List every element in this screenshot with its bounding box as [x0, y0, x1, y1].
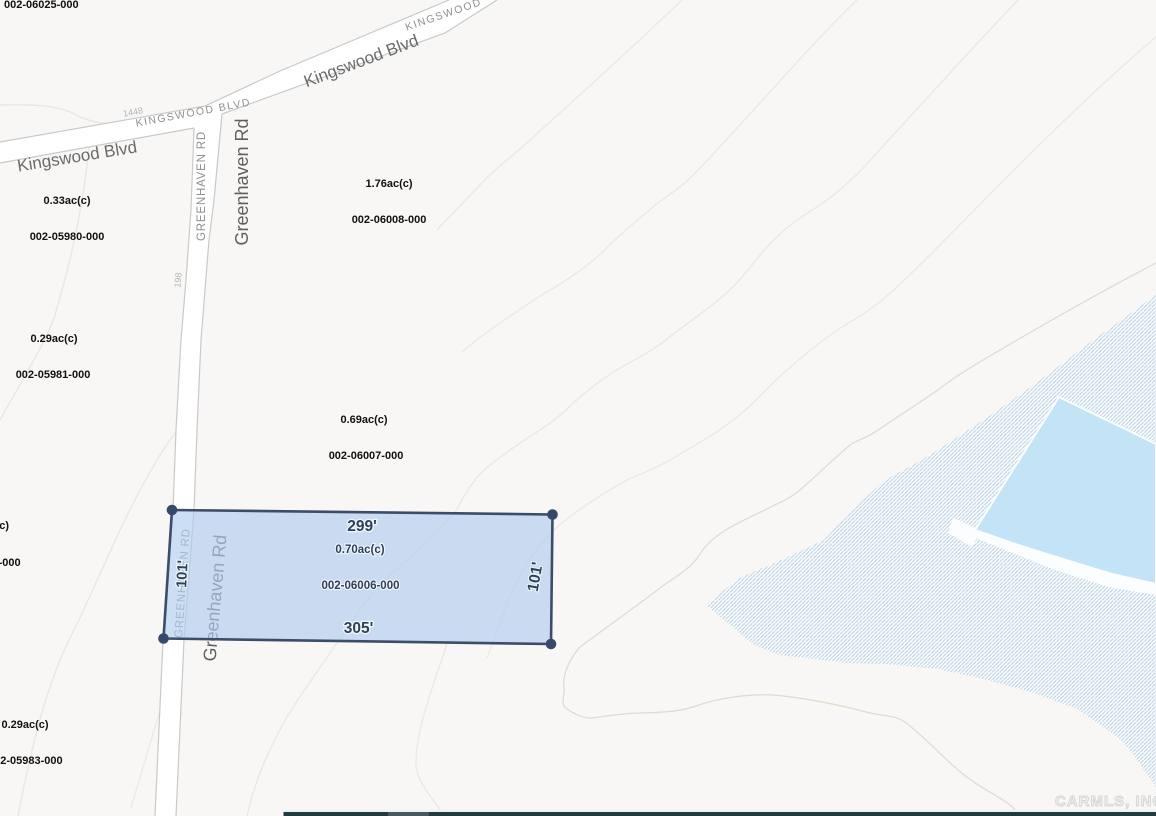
svg-text:GREENHAVEN RD: GREENHAVEN RD — [196, 131, 208, 241]
svg-text:101': 101' — [174, 560, 191, 588]
svg-text:305': 305' — [344, 620, 374, 637]
svg-text:002-06006-000: 002-06006-000 — [321, 580, 399, 592]
svg-text:0.33ac(c): 0.33ac(c) — [43, 195, 90, 207]
svg-text:0.70ac(c): 0.70ac(c) — [335, 544, 384, 556]
svg-text:002-06007-000: 002-06007-000 — [329, 450, 404, 462]
svg-text:002-05981-000: 002-05981-000 — [16, 369, 91, 381]
svg-text:002-05987-000: 002-05987-000 — [0, 557, 21, 569]
svg-text:002-05983-000: 002-05983-000 — [0, 755, 63, 767]
svg-text:0.33ac(c): 0.33ac(c) — [0, 520, 9, 532]
svg-text:198: 198 — [172, 272, 183, 288]
svg-text:0.29ac(c): 0.29ac(c) — [1, 719, 48, 731]
svg-text:Greenhaven Rd: Greenhaven Rd — [232, 118, 252, 245]
svg-text:002-06008-000: 002-06008-000 — [352, 214, 427, 226]
svg-text:002-05980-000: 002-05980-000 — [30, 231, 105, 243]
svg-text:002-06025-000: 002-06025-000 — [4, 0, 79, 11]
svg-text:1.76ac(c): 1.76ac(c) — [365, 178, 412, 190]
svg-text:0.69ac(c): 0.69ac(c) — [340, 414, 387, 426]
svg-text:CARMLS, INC: CARMLS, INC — [1055, 793, 1156, 810]
svg-text:299': 299' — [347, 518, 377, 535]
svg-text:0.29ac(c): 0.29ac(c) — [30, 333, 77, 345]
